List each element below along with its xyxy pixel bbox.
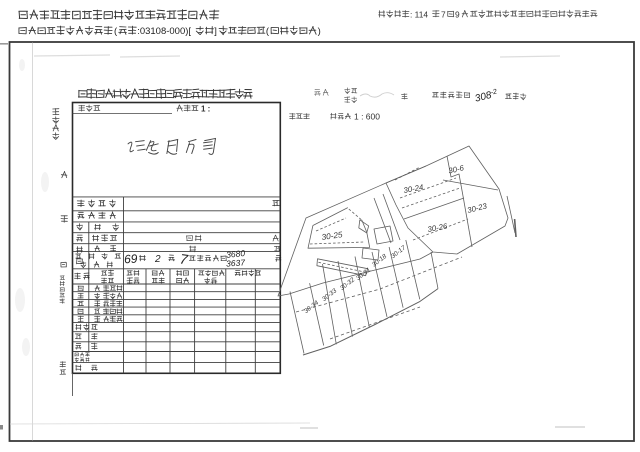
svg-text::03108-000)[: :03108-000)[ — [137, 26, 191, 36]
svg-text:2: 2 — [154, 254, 161, 265]
svg-text:7: 7 — [441, 10, 446, 20]
svg-text:: 114: : 114 — [410, 10, 428, 20]
svg-text:]: ] — [214, 26, 217, 36]
svg-text:1 :: 1 : — [201, 105, 210, 114]
svg-text:9: 9 — [455, 10, 460, 20]
svg-text:): ) — [318, 26, 321, 36]
svg-text:3637: 3637 — [226, 257, 246, 268]
svg-text:69: 69 — [124, 251, 139, 266]
svg-text:1 : 600: 1 : 600 — [354, 112, 380, 122]
